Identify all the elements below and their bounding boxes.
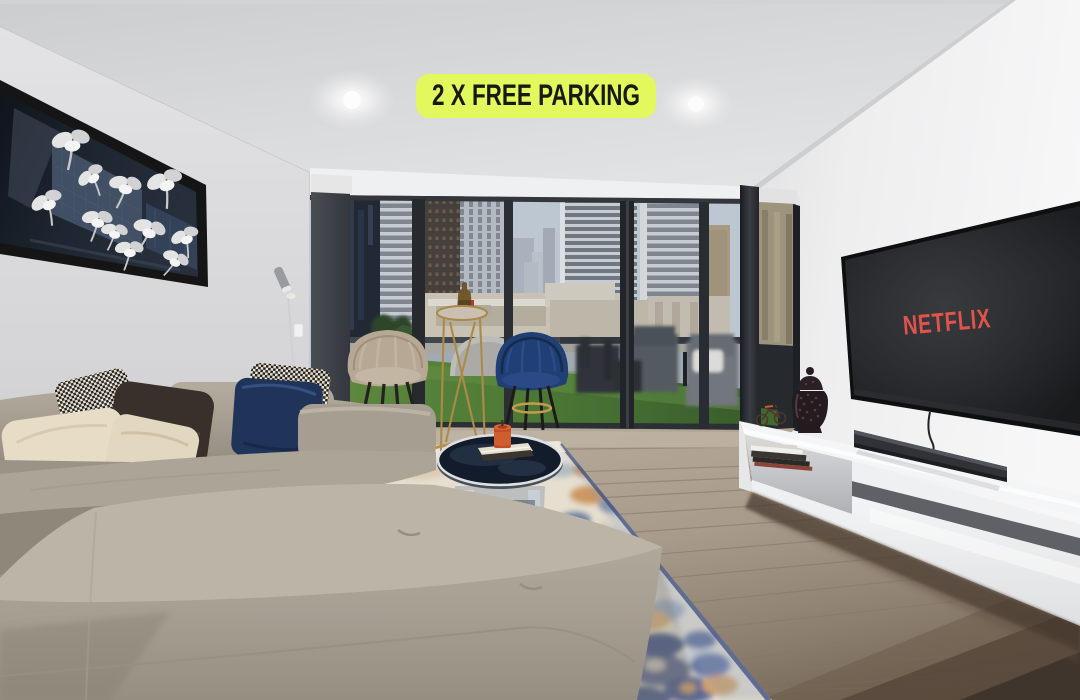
svg-text:2 X FREE PARKING: 2 X FREE PARKING — [432, 79, 640, 112]
